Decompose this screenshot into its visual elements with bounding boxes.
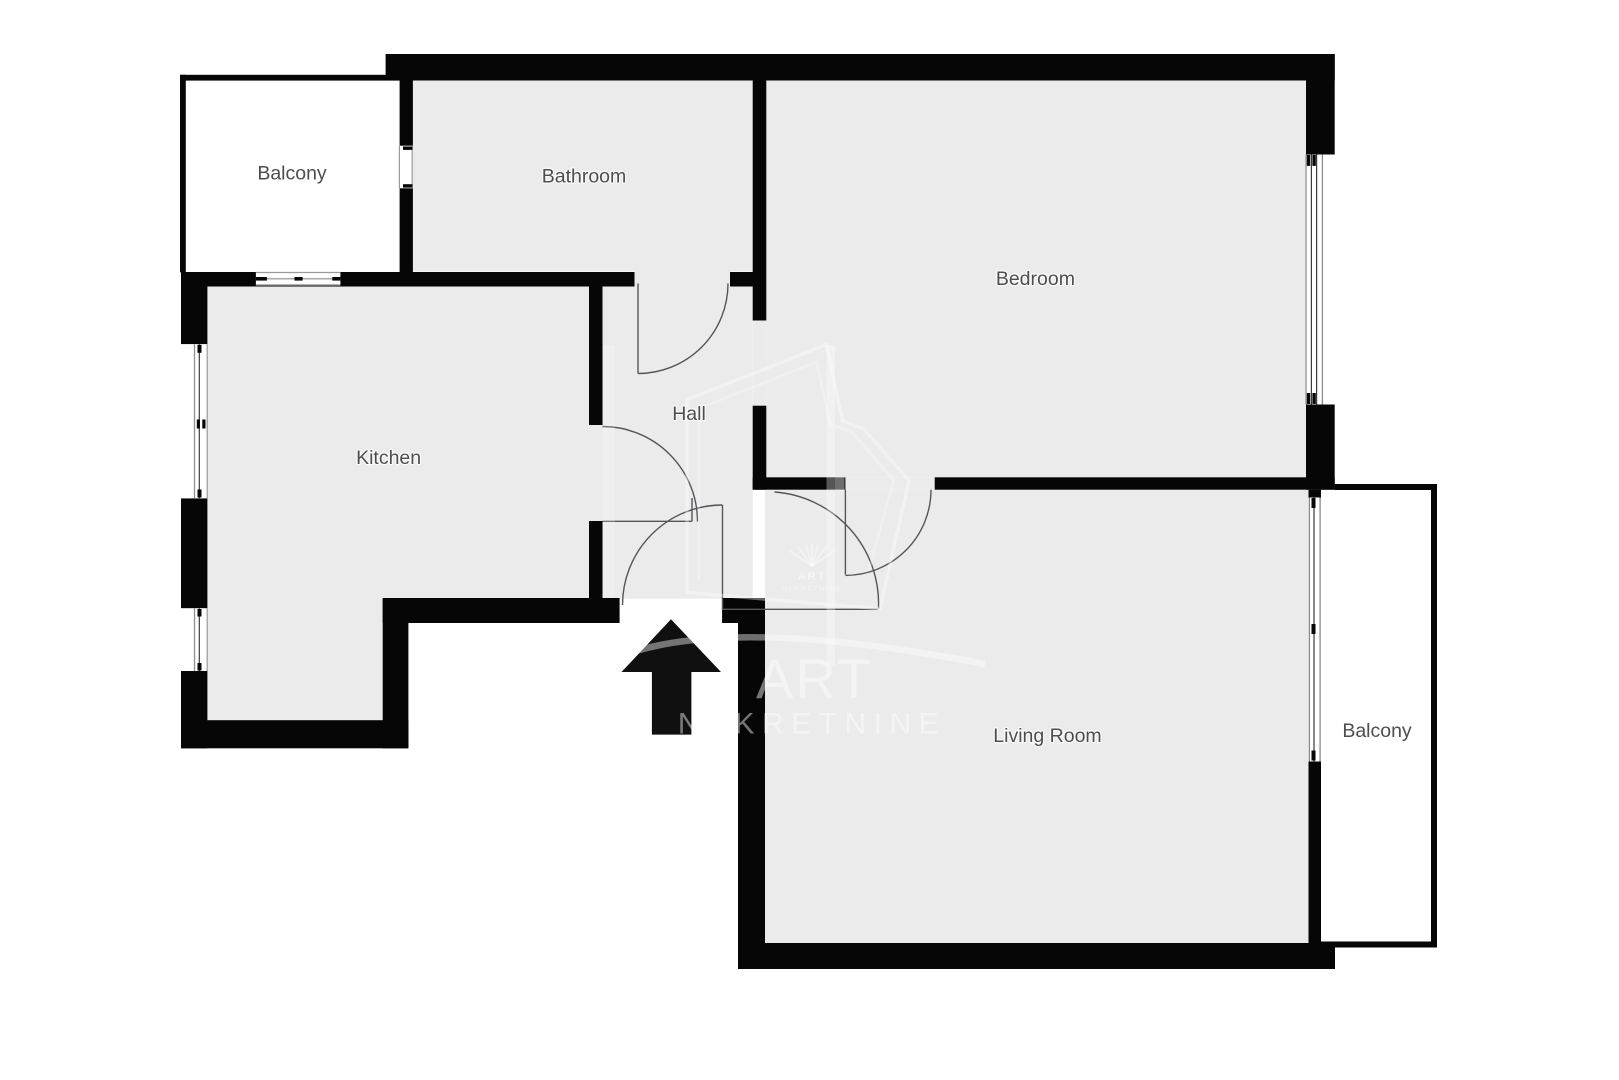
svg-text:Balcony: Balcony [1342, 720, 1412, 742]
svg-text:ART: ART [798, 571, 827, 583]
svg-text:Bathroom: Bathroom [542, 166, 627, 188]
svg-text:Hall: Hall [672, 403, 706, 425]
svg-text:ART: ART [756, 647, 873, 710]
svg-text:Balcony: Balcony [257, 163, 327, 185]
svg-text:NEKRETNINE: NEKRETNINE [782, 586, 842, 593]
svg-text:NEKRETNINE: NEKRETNINE [678, 708, 946, 741]
svg-text:Kitchen: Kitchen [356, 447, 421, 469]
svg-text:Living Room: Living Room [993, 725, 1101, 747]
svg-text:Bedroom: Bedroom [996, 268, 1075, 290]
